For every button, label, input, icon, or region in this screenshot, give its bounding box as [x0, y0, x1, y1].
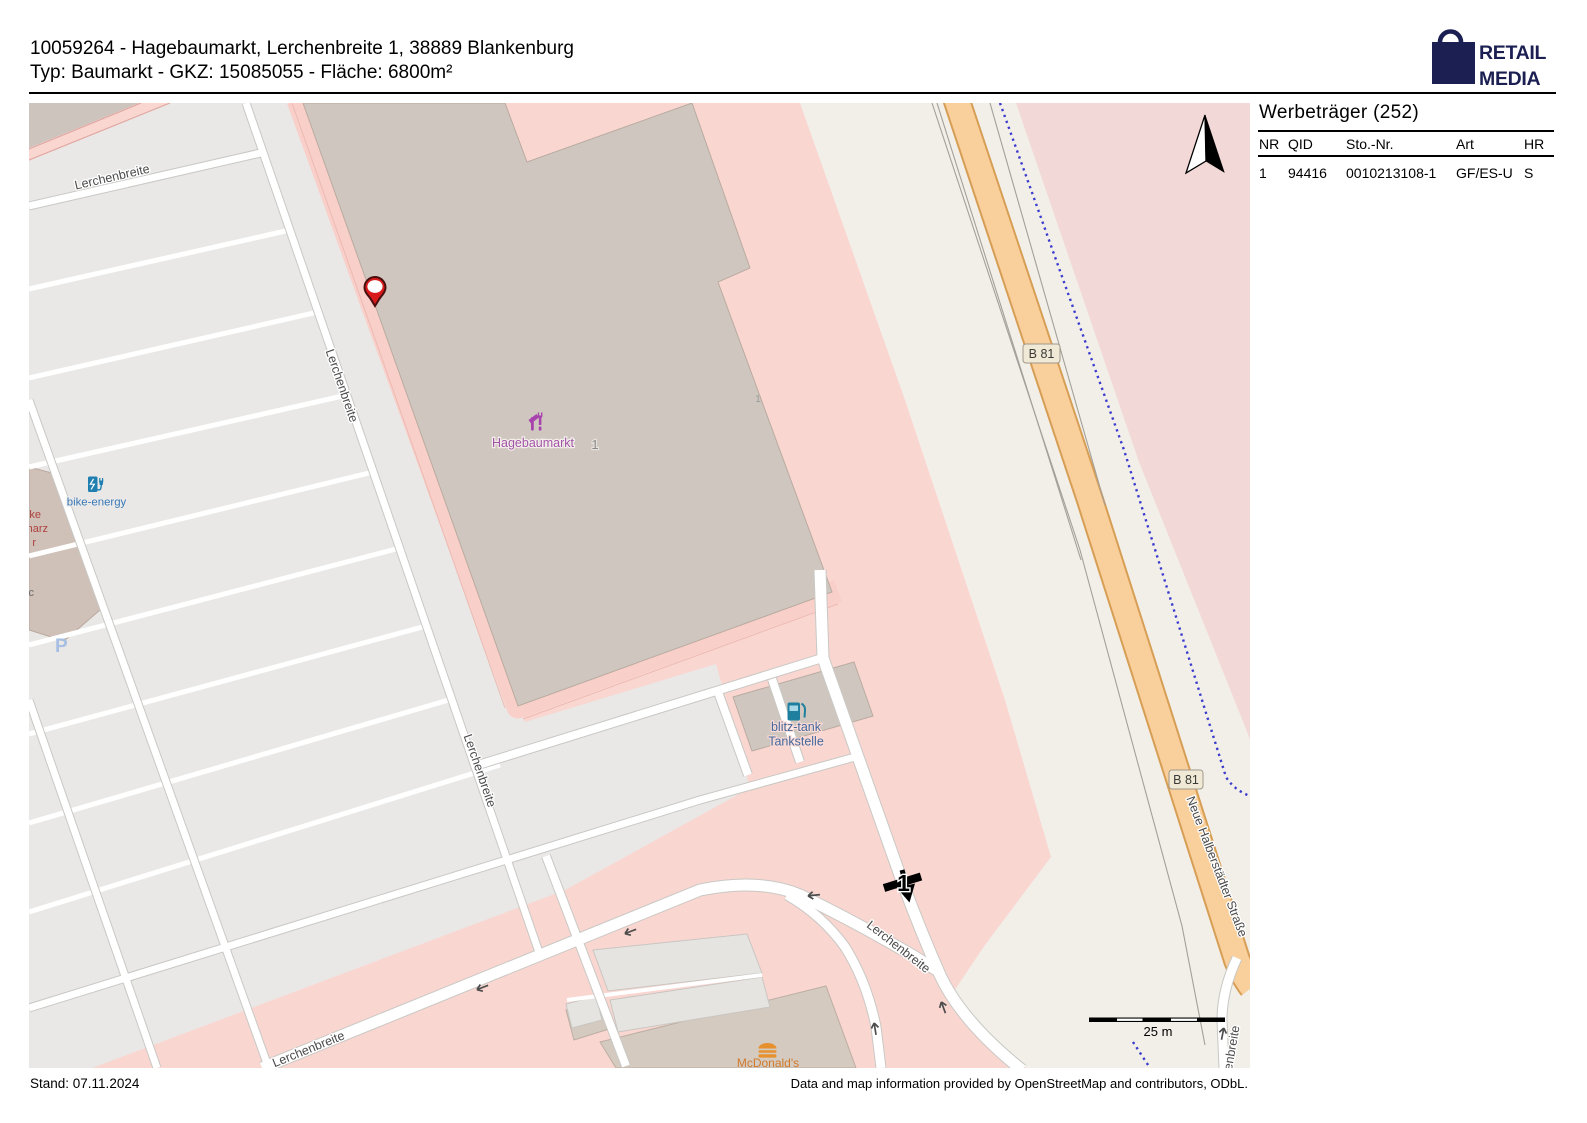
svg-text:RETAIL: RETAIL [1479, 42, 1547, 64]
svg-text:r: r [32, 537, 36, 549]
svg-text:25 m: 25 m [1144, 1024, 1173, 1039]
svg-text:Tankstelle: Tankstelle [768, 735, 824, 749]
svg-text:McDonald's: McDonald's [737, 1056, 799, 1068]
svg-text:1: 1 [755, 394, 761, 405]
svg-text:bike-energy: bike-energy [67, 497, 127, 509]
svg-text:blitz-tank: blitz-tank [771, 720, 822, 734]
svg-text:P: P [55, 636, 68, 657]
svg-text:1: 1 [897, 870, 910, 896]
svg-text:1: 1 [591, 437, 598, 452]
svg-text:sc: sc [29, 587, 35, 599]
svg-text:Hagebaumarkt: Hagebaumarkt [492, 436, 575, 450]
svg-text:B 81: B 81 [1173, 773, 1199, 787]
svg-text:harz: harz [29, 523, 48, 535]
svg-text:MEDIA: MEDIA [1479, 68, 1541, 90]
svg-text:B 81: B 81 [1029, 347, 1055, 361]
svg-text:ke: ke [29, 509, 41, 521]
